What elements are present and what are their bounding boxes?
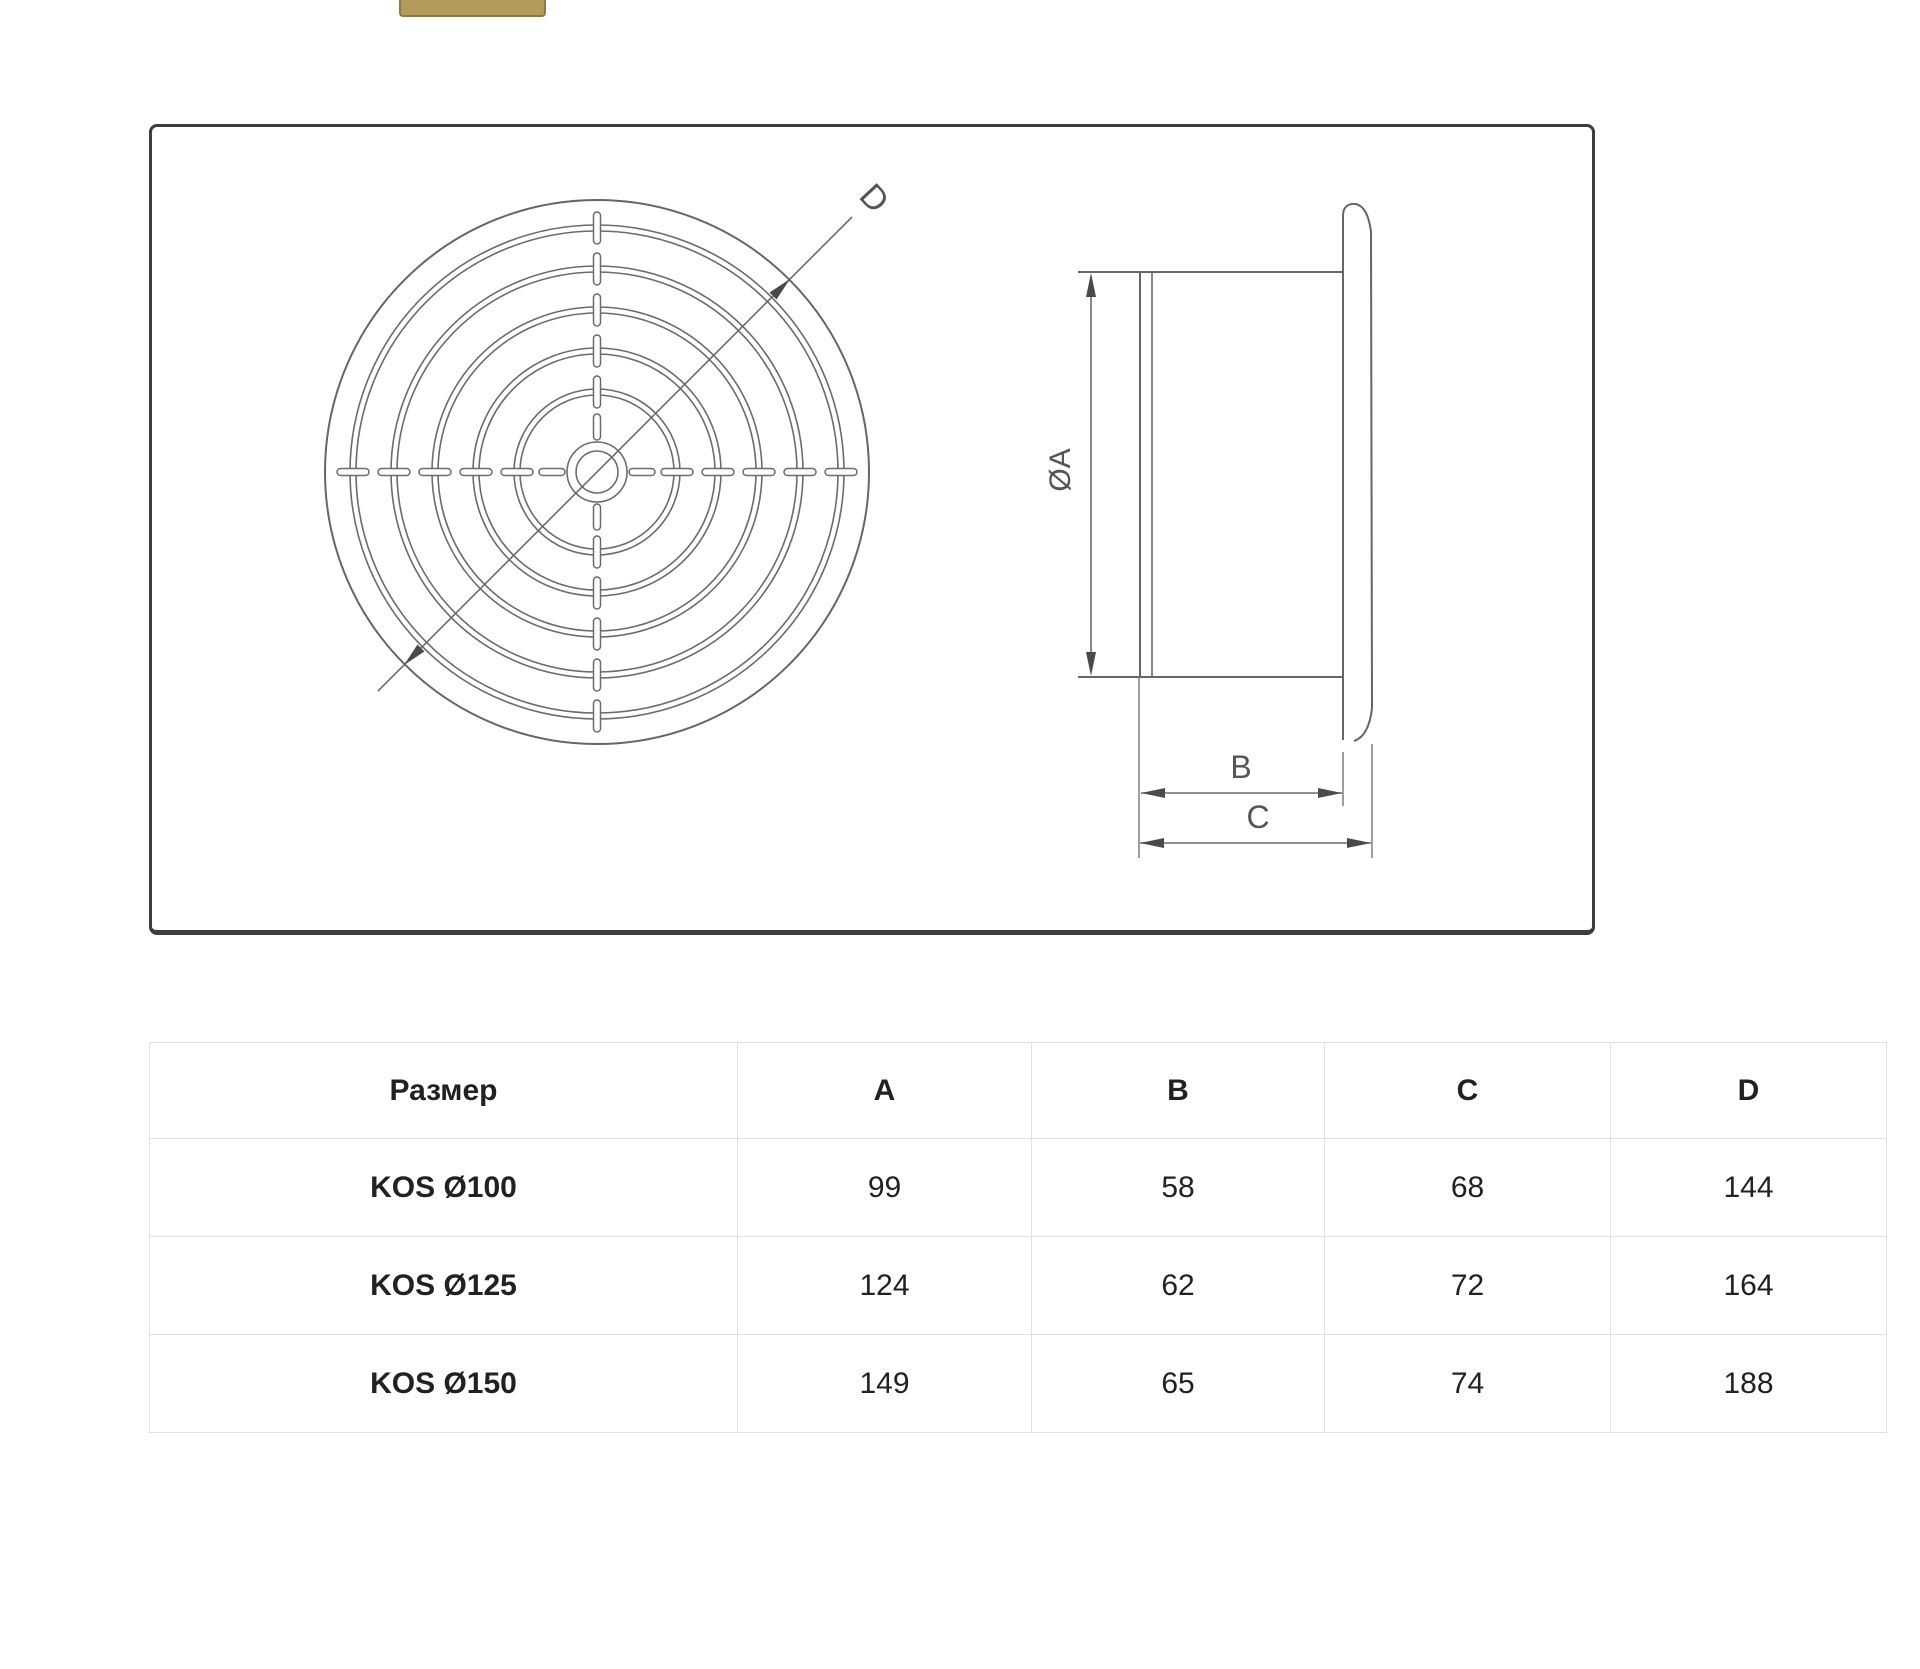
dimension-label-b: B (1230, 749, 1251, 785)
dimension-label-d: D (852, 177, 897, 221)
cell-a: 99 (738, 1139, 1032, 1237)
table-header-size: Размер (150, 1043, 738, 1139)
depth-b-dimension: B (1141, 749, 1342, 798)
table-row: KOS Ø125 124 62 72 164 (150, 1237, 1887, 1335)
clipped-top-button[interactable] (399, 0, 546, 17)
table-header-b: B (1032, 1043, 1325, 1139)
row-size-label: KOS Ø100 (150, 1139, 738, 1237)
table-header-a: A (738, 1043, 1032, 1139)
diameter-d-callout: D (378, 177, 896, 691)
product-drawing-page: D (0, 0, 1920, 1669)
front-view-grille: D (325, 177, 896, 744)
table-header-row: Размер A B C D (150, 1043, 1887, 1139)
technical-drawing-frame: D (149, 124, 1595, 935)
side-view-section: ØA B C (1044, 204, 1372, 858)
cell-b: 65 (1032, 1335, 1325, 1433)
dimensions-table: Размер A B C D KOS Ø100 99 58 68 144 KOS… (149, 1042, 1887, 1433)
row-size-label: KOS Ø150 (150, 1335, 738, 1433)
row-size-label: KOS Ø125 (150, 1237, 738, 1335)
cell-a: 149 (738, 1335, 1032, 1433)
diameter-a-dimension: ØA (1044, 273, 1096, 676)
cell-d: 188 (1611, 1335, 1887, 1433)
depth-c-dimension: C (1140, 799, 1371, 848)
cell-d: 144 (1611, 1139, 1887, 1237)
table-header-c: C (1325, 1043, 1611, 1139)
cell-c: 72 (1325, 1237, 1611, 1335)
table-header-d: D (1611, 1043, 1887, 1139)
table-row: KOS Ø100 99 58 68 144 (150, 1139, 1887, 1237)
cell-c: 74 (1325, 1335, 1611, 1433)
cell-c: 68 (1325, 1139, 1611, 1237)
cell-d: 164 (1611, 1237, 1887, 1335)
dimension-label-c: C (1246, 799, 1269, 835)
table-row: KOS Ø150 149 65 74 188 (150, 1335, 1887, 1433)
dimension-label-oa: ØA (1044, 448, 1077, 491)
cell-a: 124 (738, 1237, 1032, 1335)
cell-b: 58 (1032, 1139, 1325, 1237)
technical-drawing-svg: D (149, 124, 1595, 935)
flange-profile (1343, 204, 1372, 741)
cell-b: 62 (1032, 1237, 1325, 1335)
